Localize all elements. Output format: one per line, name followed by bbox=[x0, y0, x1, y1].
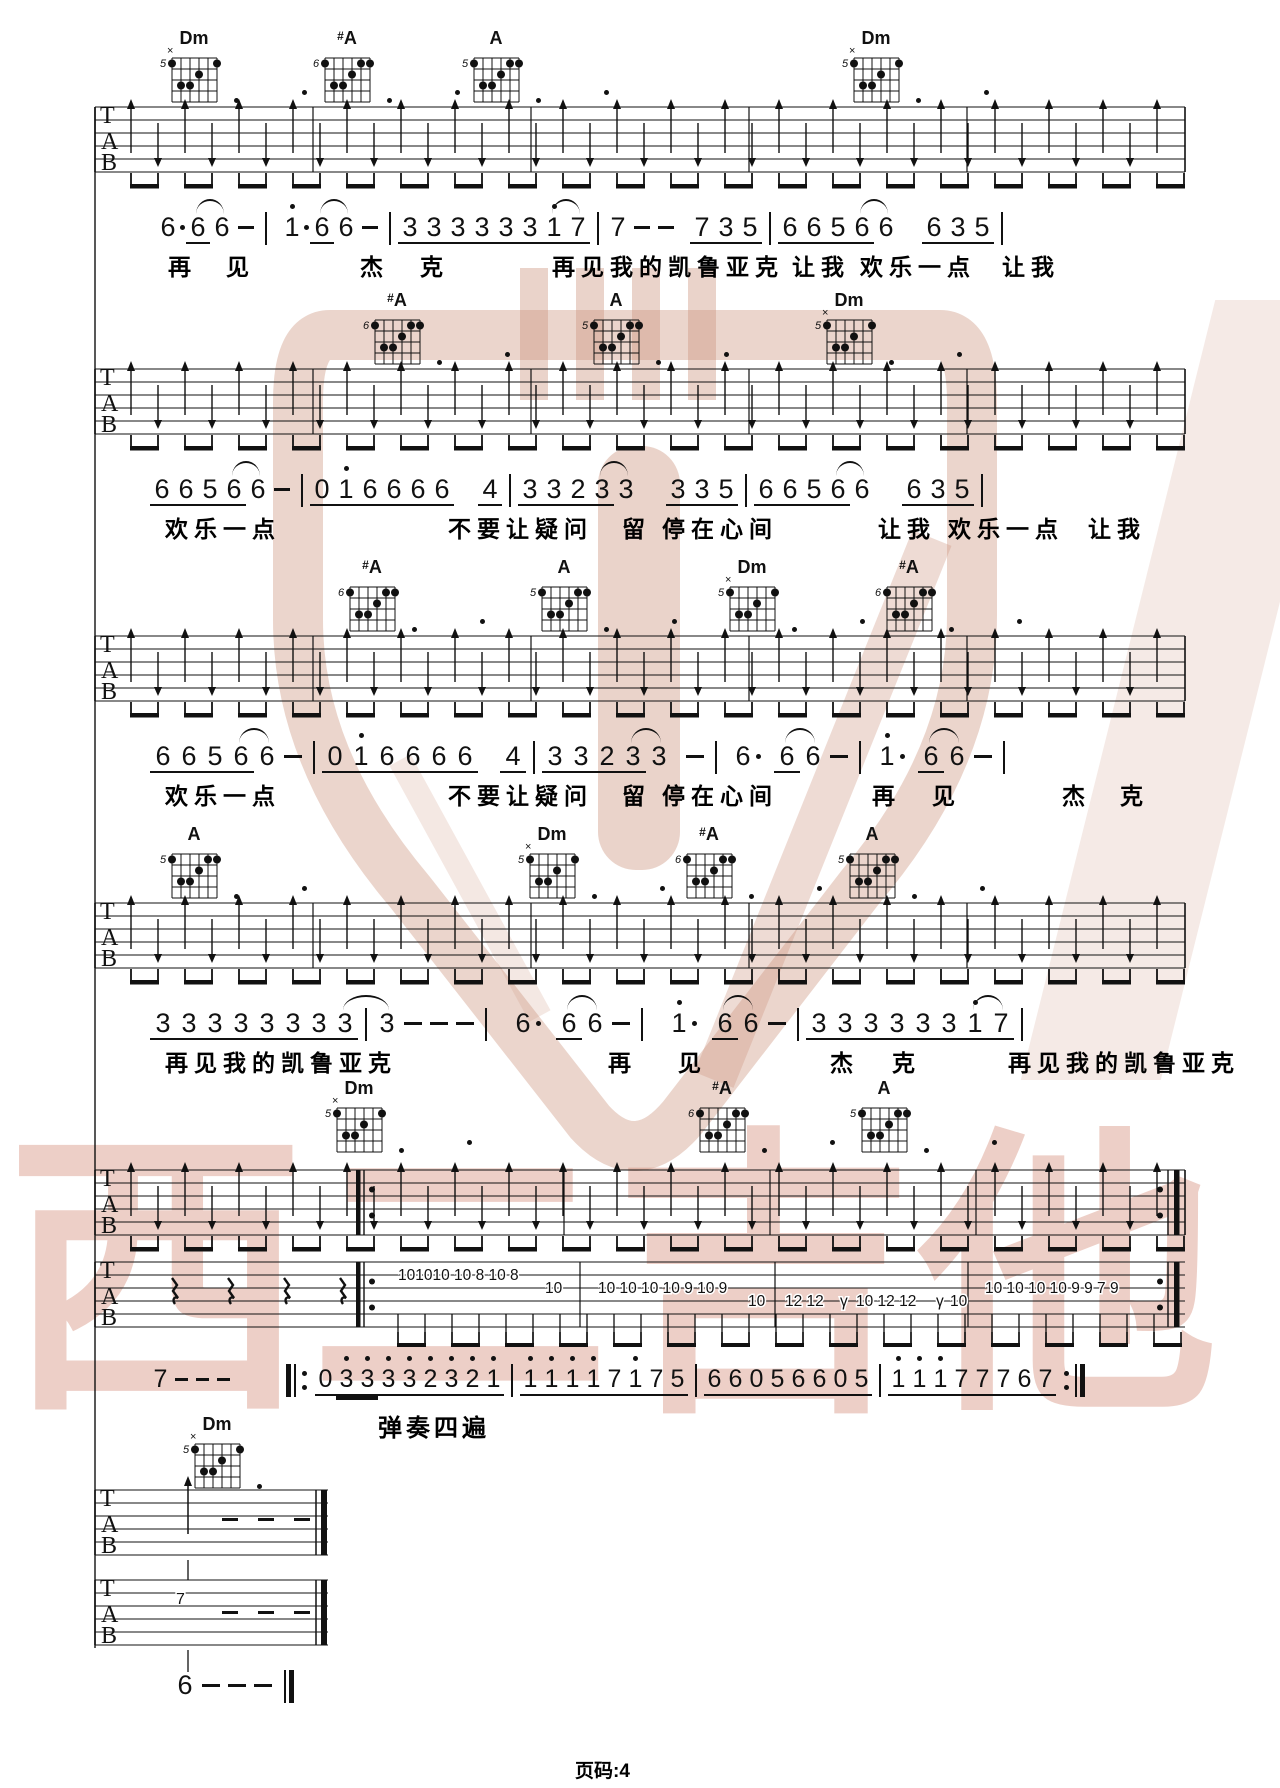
note-token: 3 bbox=[280, 1008, 306, 1040]
note-token: 6 bbox=[228, 741, 254, 773]
tab-fret-number: 10 bbox=[950, 1293, 968, 1310]
note-token: 3 bbox=[542, 741, 568, 773]
note-token: 6 bbox=[150, 741, 176, 773]
lyric-text: 再见我的凯鲁亚克 bbox=[165, 1044, 397, 1078]
barline bbox=[769, 212, 771, 245]
svg-text:A: A bbox=[866, 824, 879, 844]
svg-text:T: T bbox=[100, 1166, 115, 1192]
barline bbox=[1003, 741, 1005, 774]
tab-fret-number: 10 bbox=[748, 1293, 766, 1310]
note-token: 6 bbox=[582, 1008, 608, 1038]
note-token: 5 bbox=[802, 474, 826, 506]
svg-text:×: × bbox=[167, 45, 173, 57]
rhythm-dot bbox=[830, 1140, 835, 1145]
tab-fret-number: 12 12 bbox=[785, 1293, 824, 1310]
barline bbox=[745, 474, 747, 507]
svg-text:B: B bbox=[101, 412, 117, 438]
note-token: 6 bbox=[724, 741, 762, 771]
svg-text:5: 5 bbox=[850, 1108, 857, 1120]
svg-text:5: 5 bbox=[160, 58, 167, 70]
chord-diagram-sharpA: #A6 bbox=[686, 1078, 762, 1162]
svg-text:Dm: Dm bbox=[179, 28, 208, 48]
note-token: 6 bbox=[874, 212, 898, 242]
svg-text:6: 6 bbox=[363, 320, 370, 332]
lyric-text: 留 bbox=[622, 510, 651, 544]
note-token: 6 bbox=[778, 212, 802, 244]
note-token: 3 bbox=[374, 1008, 400, 1038]
note-token: 6 bbox=[778, 474, 802, 506]
svg-text:6: 6 bbox=[875, 587, 882, 599]
note-token: 5 bbox=[826, 212, 850, 244]
note-token: 3 bbox=[306, 1008, 332, 1040]
score-area: Dm5×#A6A5Dm5×TAB666166333333177735665666… bbox=[0, 0, 1280, 1788]
note-token: 1 bbox=[962, 1008, 988, 1040]
barline bbox=[597, 212, 599, 245]
svg-text:T: T bbox=[100, 632, 115, 658]
lyric-text: 克 bbox=[892, 1044, 921, 1078]
note-token: 5 bbox=[714, 474, 738, 506]
note-token: 1 bbox=[660, 1008, 698, 1038]
note-token: 3 bbox=[542, 474, 566, 506]
lyric-text: 杰 bbox=[830, 1044, 859, 1078]
note-token: 6 bbox=[922, 212, 946, 244]
svg-text:7: 7 bbox=[176, 1591, 185, 1608]
svg-text:Dm: Dm bbox=[202, 1414, 231, 1434]
tab-fret-number: 10 10 10 10 9 10 9 bbox=[598, 1280, 727, 1297]
note-token: 3 bbox=[620, 741, 646, 773]
svg-text:Dm: Dm bbox=[537, 824, 566, 844]
note-token: 6 bbox=[400, 741, 426, 773]
rhythm-dot bbox=[924, 1148, 929, 1153]
barline bbox=[509, 474, 511, 507]
svg-text:#A: #A bbox=[362, 557, 382, 577]
svg-text:B: B bbox=[101, 1305, 117, 1331]
svg-text:T: T bbox=[100, 1576, 115, 1602]
note-token: 3 bbox=[568, 741, 594, 773]
note-token: 6 bbox=[774, 741, 800, 773]
lyric-text: 杰 bbox=[1062, 777, 1091, 811]
lyric-text: 再 bbox=[872, 777, 901, 811]
lyric-text: 欢乐一点 bbox=[165, 510, 281, 544]
lyric-text: 留 bbox=[622, 777, 651, 811]
note-token: 1 bbox=[542, 212, 566, 244]
svg-text:5: 5 bbox=[815, 320, 822, 332]
tab-fret-number: γ bbox=[840, 1293, 848, 1310]
svg-text:#A: #A bbox=[712, 1078, 732, 1098]
note-token: 7 bbox=[566, 212, 590, 244]
svg-text:A: A bbox=[490, 28, 503, 48]
strum-tab-staff: TAB bbox=[0, 355, 1280, 467]
svg-text:Dm: Dm bbox=[737, 557, 766, 577]
note-token: 6 bbox=[556, 1008, 582, 1040]
barline bbox=[1021, 1008, 1023, 1041]
barline bbox=[301, 474, 303, 507]
lyric-text: 让我 bbox=[1088, 510, 1146, 544]
strum-tab-staff: TAB bbox=[0, 889, 1280, 1001]
note-token: 6 bbox=[712, 1008, 738, 1040]
barline bbox=[365, 1008, 367, 1041]
note-token: 5 bbox=[970, 212, 994, 244]
note-token: 2 bbox=[566, 474, 590, 506]
svg-text:#A: #A bbox=[337, 28, 357, 48]
svg-text:×: × bbox=[525, 841, 531, 853]
svg-text:5: 5 bbox=[842, 58, 849, 70]
barline bbox=[859, 741, 861, 774]
note-token: 6 bbox=[176, 741, 202, 773]
svg-text:5: 5 bbox=[718, 587, 725, 599]
svg-text:6: 6 bbox=[338, 587, 345, 599]
note-token: 3 bbox=[832, 1008, 858, 1040]
note-token: 3 bbox=[446, 212, 470, 244]
strum-tab-staff: TAB bbox=[0, 622, 1280, 734]
note-token: 6 bbox=[374, 741, 400, 773]
lyric-text: 克 bbox=[1120, 777, 1149, 811]
svg-text:B: B bbox=[101, 150, 117, 176]
svg-text:×: × bbox=[725, 574, 731, 586]
note-token: 3 bbox=[254, 1008, 280, 1040]
page-number: 页码:4 bbox=[575, 1756, 630, 1783]
note-token: 3 bbox=[228, 1008, 254, 1040]
svg-text:×: × bbox=[849, 45, 855, 57]
note-token: 2 bbox=[594, 741, 620, 773]
svg-text:6: 6 bbox=[313, 58, 320, 70]
note-token: 6 bbox=[430, 474, 454, 506]
note-token: 6 bbox=[754, 474, 778, 506]
rhythm-dot bbox=[467, 1140, 472, 1145]
note-token: 5 bbox=[198, 474, 222, 506]
lyric-text: 克 bbox=[420, 248, 449, 282]
tab-fret-number: 10 12 12 bbox=[856, 1293, 916, 1310]
svg-text:#A: #A bbox=[699, 824, 719, 844]
note-token: 7 bbox=[606, 212, 630, 242]
note-token: 3 bbox=[422, 212, 446, 244]
lyric-text: 不要让疑问 bbox=[448, 777, 593, 811]
note-token: 6 bbox=[738, 1008, 764, 1038]
svg-text:B: B bbox=[101, 1213, 117, 1239]
lyric-text: 再 bbox=[168, 248, 197, 282]
note-token: 3 bbox=[666, 474, 690, 506]
note-token: 3 bbox=[470, 212, 494, 244]
lyric-text: 欢乐一点 bbox=[165, 777, 281, 811]
note-token: 6 bbox=[504, 1008, 542, 1038]
lyric-text: 停在心间 bbox=[662, 510, 778, 544]
svg-text:T: T bbox=[100, 365, 115, 391]
lyric-text: 停在心间 bbox=[662, 777, 778, 811]
note-token: 6 bbox=[944, 741, 970, 771]
note-token: 6 bbox=[222, 474, 246, 506]
note-token: 3 bbox=[614, 474, 638, 504]
svg-text:×: × bbox=[332, 1095, 338, 1107]
note-token: 3 bbox=[494, 212, 518, 244]
lyric-text: 再见我的凯鲁亚克 bbox=[552, 248, 784, 282]
barline bbox=[265, 212, 267, 245]
tab-fret-number: γ bbox=[936, 1293, 944, 1310]
svg-text:5: 5 bbox=[183, 1444, 190, 1456]
note-token: 5 bbox=[738, 212, 762, 244]
note-token: 1 bbox=[274, 212, 310, 242]
note-token: 3 bbox=[398, 212, 422, 244]
svg-text:5: 5 bbox=[160, 854, 167, 866]
lyric-text: 杰 bbox=[360, 248, 389, 282]
note-token: 3 bbox=[806, 1008, 832, 1040]
svg-text:T: T bbox=[100, 1258, 115, 1284]
note-token: 3 bbox=[946, 212, 970, 244]
note-token: 6 bbox=[918, 741, 944, 773]
note-token: 1 bbox=[348, 741, 374, 773]
note-token: 3 bbox=[690, 474, 714, 506]
barline bbox=[533, 741, 535, 774]
note-token: 3 bbox=[518, 212, 542, 244]
barline bbox=[389, 212, 391, 245]
note-token: 0 bbox=[310, 474, 334, 506]
chord-diagram-Dm: Dm5× bbox=[323, 1078, 399, 1162]
svg-text:B: B bbox=[101, 679, 117, 705]
lyric-text: 欢乐一点 bbox=[860, 248, 976, 282]
svg-text:Dm: Dm bbox=[344, 1078, 373, 1098]
note-token: 6 bbox=[452, 741, 478, 773]
chord-diagram-A: A5 bbox=[848, 1078, 924, 1162]
svg-text:B: B bbox=[101, 1533, 117, 1559]
note-token: 7 bbox=[690, 212, 714, 244]
note-token: 7 bbox=[988, 1008, 1014, 1040]
svg-text:×: × bbox=[190, 1431, 196, 1443]
barline bbox=[797, 1008, 799, 1041]
svg-text:5: 5 bbox=[325, 1108, 332, 1120]
note-token: 6 bbox=[826, 474, 850, 506]
note-token: 6 bbox=[850, 212, 874, 244]
note-token: 5 bbox=[202, 741, 228, 773]
barline bbox=[981, 474, 983, 507]
svg-text:5: 5 bbox=[462, 58, 469, 70]
note-token: 3 bbox=[176, 1008, 202, 1040]
note-token: 6 bbox=[406, 474, 430, 506]
svg-text:A: A bbox=[558, 557, 571, 577]
note-token: 3 bbox=[202, 1008, 228, 1040]
svg-text:#A: #A bbox=[899, 557, 919, 577]
svg-text:T: T bbox=[100, 103, 115, 129]
rhythm-dot bbox=[992, 1140, 997, 1145]
note-token: 6 bbox=[382, 474, 406, 506]
score-left-margin-line bbox=[93, 100, 99, 1652]
svg-text:B: B bbox=[101, 946, 117, 972]
barline bbox=[641, 1008, 643, 1041]
svg-text:6: 6 bbox=[675, 854, 682, 866]
svg-text:5: 5 bbox=[838, 854, 845, 866]
svg-text:T: T bbox=[100, 1486, 115, 1512]
svg-text:5: 5 bbox=[530, 587, 537, 599]
note-token: 3 bbox=[518, 474, 542, 506]
note-token: 6 bbox=[800, 741, 826, 771]
play-instruction: 弹奏四遍 bbox=[378, 1408, 490, 1443]
lyric-text: 让我 bbox=[792, 248, 850, 282]
tail-tab-staff-2: TAB7 bbox=[0, 1566, 360, 1678]
note-token: 3 bbox=[926, 474, 950, 506]
lyric-text: 再见我的凯鲁亚克 bbox=[1008, 1044, 1240, 1078]
svg-text:A: A bbox=[188, 824, 201, 844]
note-token: 3 bbox=[150, 1008, 176, 1040]
tab-fret-number: 10 10 10 10 9 9 7 9 bbox=[985, 1280, 1119, 1297]
strum-tab-staff: TAB bbox=[0, 93, 1280, 205]
note-token: 6 bbox=[150, 212, 186, 242]
lyric-text: 见 bbox=[678, 1044, 707, 1078]
note-token: 6 bbox=[210, 212, 234, 242]
tab-fret-number: 101010 10 8 10 8 bbox=[398, 1267, 519, 1284]
note-token: 6 bbox=[334, 212, 358, 242]
note-token: 4 bbox=[500, 741, 526, 773]
barline bbox=[715, 741, 717, 774]
rhythm-dot bbox=[762, 1148, 767, 1153]
tab-fret-number: 10 bbox=[545, 1280, 563, 1297]
lyric-text: 见 bbox=[226, 248, 255, 282]
note-token: 3 bbox=[910, 1008, 936, 1040]
svg-text:B: B bbox=[101, 1623, 117, 1649]
svg-text:×: × bbox=[822, 307, 828, 319]
note-token: 3 bbox=[858, 1008, 884, 1040]
melody-tab-staff: TAB101010 10 8 10 81010 10 10 10 9 10 91… bbox=[0, 1248, 1280, 1378]
svg-text:Dm: Dm bbox=[834, 290, 863, 310]
svg-text:5: 5 bbox=[582, 320, 589, 332]
lyric-text: 再 bbox=[608, 1044, 637, 1078]
note-token: 3 bbox=[936, 1008, 962, 1040]
lyric-text: 让我 bbox=[1002, 248, 1060, 282]
note-token: 3 bbox=[884, 1008, 910, 1040]
lyric-text: 欢乐一点 bbox=[948, 510, 1064, 544]
note-token: 6 bbox=[426, 741, 452, 773]
svg-text:5: 5 bbox=[518, 854, 525, 866]
note-token: 6 bbox=[850, 474, 874, 504]
svg-text:Dm: Dm bbox=[861, 28, 890, 48]
note-token: 1 bbox=[334, 474, 358, 506]
note-token: 3 bbox=[646, 741, 672, 771]
svg-text:A: A bbox=[878, 1078, 891, 1098]
note-token: 6 bbox=[802, 212, 826, 244]
note-token: 3 bbox=[714, 212, 738, 244]
svg-text:A: A bbox=[610, 290, 623, 310]
svg-text:#A: #A bbox=[387, 290, 407, 310]
svg-text:T: T bbox=[100, 899, 115, 925]
note-token: 6 bbox=[186, 212, 210, 244]
lyric-text: 让我 bbox=[878, 510, 936, 544]
sheet-music-page: 西二吉他 Dm5×#A6A5Dm5×TAB6661663333331777356… bbox=[0, 0, 1280, 1788]
note-token: 6 bbox=[310, 212, 334, 244]
rhythm-dot bbox=[399, 1148, 404, 1153]
barline bbox=[313, 741, 315, 774]
note-token: 6 bbox=[150, 474, 174, 506]
note-token: 6 bbox=[902, 474, 926, 506]
note-token: 6 bbox=[174, 474, 198, 506]
note-token: 6 bbox=[246, 474, 270, 504]
note-token: 6 bbox=[254, 741, 280, 771]
svg-text:6: 6 bbox=[688, 1108, 695, 1120]
barline bbox=[1001, 212, 1003, 245]
note-token: 3 bbox=[332, 1008, 358, 1040]
lyric-text: 见 bbox=[932, 777, 961, 811]
lyric-text: 不要让疑问 bbox=[448, 510, 593, 544]
note-token: 3 bbox=[590, 474, 614, 506]
note-token: 1 bbox=[868, 741, 906, 771]
note-token: 4 bbox=[478, 474, 502, 506]
note-token: 5 bbox=[950, 474, 974, 506]
note-token: 0 bbox=[322, 741, 348, 773]
barline bbox=[485, 1008, 487, 1041]
note-token: 6 bbox=[358, 474, 382, 506]
